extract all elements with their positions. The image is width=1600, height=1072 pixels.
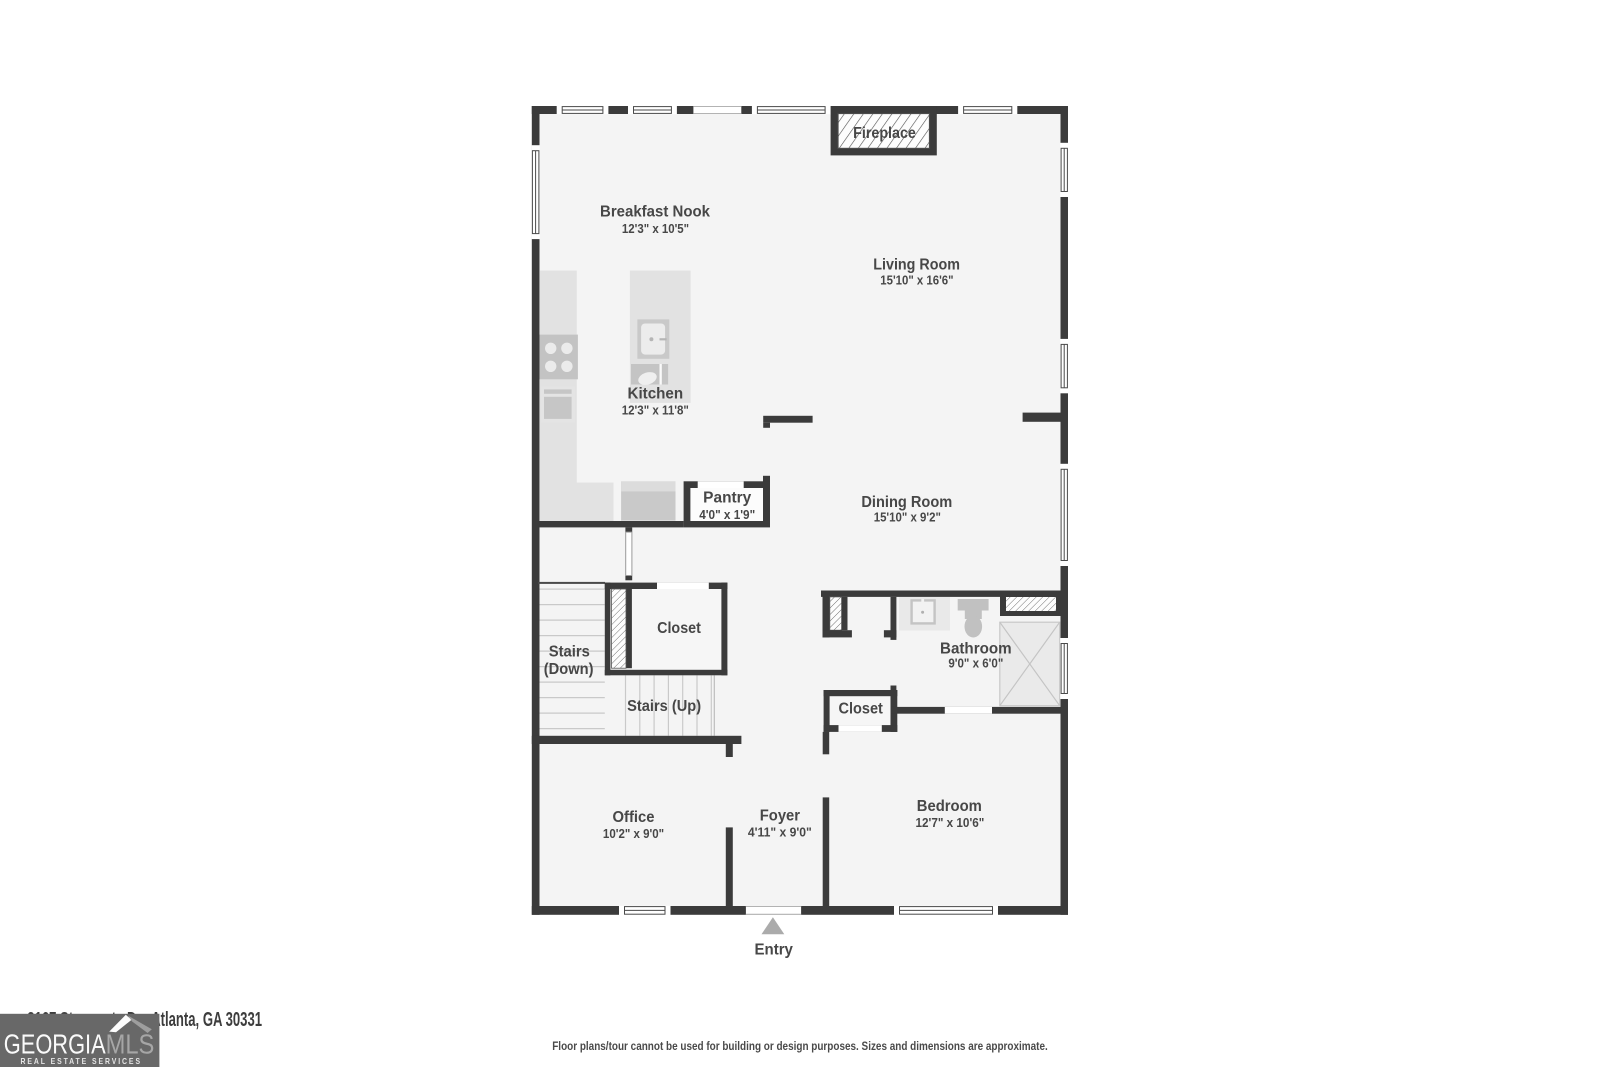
svg-text:12'3" x 10'5": 12'3" x 10'5": [622, 221, 689, 236]
svg-text:15'10" x 16'6": 15'10" x 16'6": [880, 273, 953, 288]
svg-text:Kitchen: Kitchen: [627, 385, 683, 402]
svg-text:Bathroom: Bathroom: [940, 640, 1012, 657]
svg-text:(Down): (Down): [544, 661, 594, 679]
svg-text:10'2" x 9'0": 10'2" x 9'0": [603, 827, 664, 842]
svg-text:12'3" x 11'8": 12'3" x 11'8": [622, 403, 689, 418]
svg-text:REAL ESTATE SERVICES: REAL ESTATE SERVICES: [21, 1056, 142, 1066]
svg-text:Breakfast Nook: Breakfast Nook: [600, 203, 710, 221]
svg-text:15'10" x 9'2": 15'10" x 9'2": [874, 510, 941, 525]
svg-text:Closet: Closet: [657, 619, 701, 637]
svg-text:12'7" x 10'6": 12'7" x 10'6": [915, 816, 984, 831]
svg-text:Fireplace: Fireplace: [853, 124, 916, 142]
svg-text:Stairs (Up): Stairs (Up): [627, 698, 701, 716]
svg-text:Foyer: Foyer: [760, 807, 800, 825]
svg-text:4'0" x 1'9": 4'0" x 1'9": [699, 508, 755, 523]
svg-text:Bedroom: Bedroom: [917, 798, 982, 816]
svg-text:Living Room: Living Room: [873, 256, 960, 274]
svg-text:Office: Office: [613, 809, 655, 827]
svg-text:Floor plans/tour cannot be use: Floor plans/tour cannot be used for buil…: [552, 1040, 1048, 1053]
svg-text:Pantry: Pantry: [703, 489, 751, 506]
svg-text:Closet: Closet: [839, 700, 883, 718]
svg-text:Entry: Entry: [754, 941, 793, 959]
svg-text:9'0" x 6'0": 9'0" x 6'0": [948, 656, 1003, 671]
svg-text:Stairs: Stairs: [549, 643, 590, 661]
svg-text:4'11" x 9'0": 4'11" x 9'0": [748, 825, 812, 839]
svg-text:Dining Room: Dining Room: [861, 494, 952, 512]
